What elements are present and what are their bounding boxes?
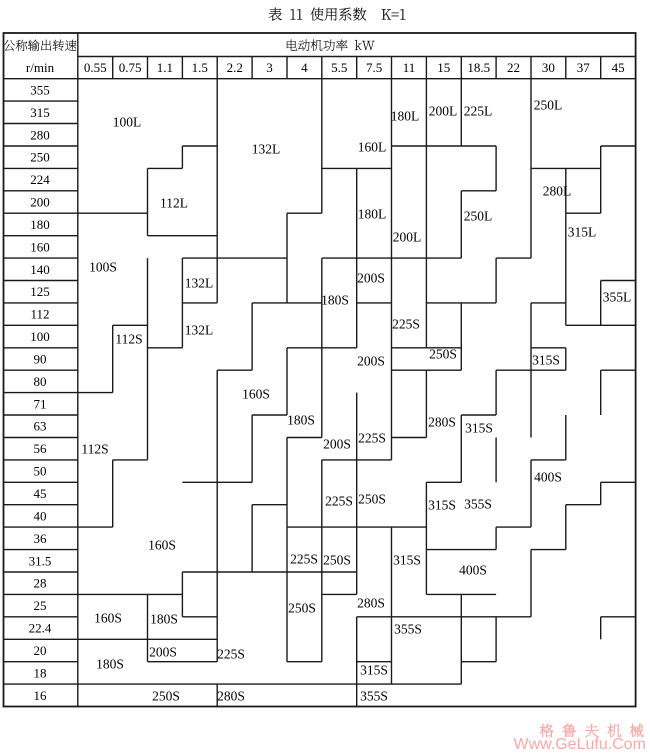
svg-text:7.5: 7.5 bbox=[366, 60, 382, 75]
svg-text:5.5: 5.5 bbox=[331, 60, 347, 75]
svg-text:250S: 250S bbox=[323, 553, 351, 568]
svg-text:4: 4 bbox=[301, 60, 308, 75]
svg-text:50: 50 bbox=[34, 464, 47, 479]
svg-text:280: 280 bbox=[30, 127, 50, 142]
svg-text:18.5: 18.5 bbox=[467, 60, 490, 75]
svg-text:200S: 200S bbox=[149, 645, 177, 660]
svg-text:250S: 250S bbox=[429, 347, 457, 362]
svg-text:315S: 315S bbox=[393, 553, 421, 568]
svg-text:132L: 132L bbox=[185, 323, 214, 338]
svg-text:Www.GeLufu.Com: Www.GeLufu.Com bbox=[514, 736, 646, 753]
svg-text:71: 71 bbox=[34, 396, 47, 411]
svg-text:112L: 112L bbox=[160, 196, 188, 211]
svg-text:225S: 225S bbox=[325, 494, 353, 509]
svg-text:250: 250 bbox=[30, 150, 50, 165]
svg-text:250L: 250L bbox=[534, 98, 563, 113]
svg-text:280S: 280S bbox=[357, 596, 385, 611]
svg-text:160: 160 bbox=[30, 239, 50, 254]
svg-text:r/min: r/min bbox=[26, 60, 55, 75]
svg-text:45: 45 bbox=[612, 60, 625, 75]
svg-text:400S: 400S bbox=[534, 470, 562, 485]
svg-text:355S: 355S bbox=[394, 622, 422, 637]
svg-text:3: 3 bbox=[266, 60, 273, 75]
svg-text:250S: 250S bbox=[358, 492, 386, 507]
svg-text:22: 22 bbox=[507, 60, 520, 75]
svg-text:63: 63 bbox=[34, 419, 47, 434]
svg-text:1.1: 1.1 bbox=[157, 60, 173, 75]
svg-text:180L: 180L bbox=[391, 109, 420, 124]
svg-text:355S: 355S bbox=[360, 689, 388, 704]
svg-text:280L: 280L bbox=[543, 184, 572, 199]
svg-text:36: 36 bbox=[34, 531, 48, 546]
svg-text:100S: 100S bbox=[89, 260, 117, 275]
svg-text:37: 37 bbox=[577, 60, 591, 75]
svg-text:80: 80 bbox=[34, 374, 47, 389]
svg-text:315: 315 bbox=[30, 105, 50, 120]
svg-text:125: 125 bbox=[30, 284, 50, 299]
svg-text:225S: 225S bbox=[392, 317, 420, 332]
svg-text:160L: 160L bbox=[358, 140, 387, 155]
svg-text:225S: 225S bbox=[358, 431, 386, 446]
svg-text:0.55: 0.55 bbox=[84, 60, 107, 75]
svg-text:315L: 315L bbox=[568, 225, 597, 240]
svg-text:132L: 132L bbox=[185, 276, 214, 291]
svg-text:180: 180 bbox=[30, 217, 50, 232]
svg-text:90: 90 bbox=[34, 352, 47, 367]
svg-text:250L: 250L bbox=[464, 209, 493, 224]
svg-text:20: 20 bbox=[34, 643, 47, 658]
svg-text:11: 11 bbox=[403, 60, 416, 75]
svg-text:315S: 315S bbox=[360, 663, 388, 678]
svg-text:180L: 180L bbox=[358, 207, 387, 222]
svg-text:45: 45 bbox=[34, 486, 47, 501]
svg-text:112: 112 bbox=[30, 307, 49, 322]
svg-text:31.5: 31.5 bbox=[29, 553, 52, 568]
svg-text:15: 15 bbox=[437, 60, 450, 75]
svg-text:250S: 250S bbox=[152, 689, 180, 704]
svg-text:22.4: 22.4 bbox=[29, 621, 52, 636]
svg-text:180S: 180S bbox=[150, 612, 178, 627]
svg-text:2.2: 2.2 bbox=[227, 60, 243, 75]
svg-text:132L: 132L bbox=[252, 142, 281, 157]
svg-text:180S: 180S bbox=[287, 413, 315, 428]
svg-text:100: 100 bbox=[30, 329, 50, 344]
svg-text:200: 200 bbox=[30, 195, 50, 210]
svg-text:56: 56 bbox=[34, 441, 48, 456]
svg-text:180S: 180S bbox=[321, 293, 349, 308]
svg-text:100L: 100L bbox=[113, 115, 142, 130]
svg-text:112S: 112S bbox=[115, 332, 142, 347]
svg-text:225S: 225S bbox=[290, 552, 318, 567]
svg-text:200L: 200L bbox=[393, 230, 422, 245]
svg-text:28: 28 bbox=[34, 576, 47, 591]
svg-text:200L: 200L bbox=[429, 104, 458, 119]
svg-text:16: 16 bbox=[34, 688, 48, 703]
svg-text:355L: 355L bbox=[603, 290, 632, 305]
svg-text:280S: 280S bbox=[428, 415, 456, 430]
svg-text:160S: 160S bbox=[148, 538, 176, 553]
svg-text:160S: 160S bbox=[242, 387, 270, 402]
svg-text:200S: 200S bbox=[357, 354, 385, 369]
svg-text:140: 140 bbox=[30, 262, 50, 277]
svg-text:160S: 160S bbox=[94, 611, 122, 626]
svg-text:224: 224 bbox=[30, 172, 50, 187]
svg-text:280S: 280S bbox=[217, 689, 245, 704]
svg-text:225L: 225L bbox=[464, 104, 493, 119]
svg-text:112S: 112S bbox=[81, 442, 108, 457]
svg-text:315S: 315S bbox=[428, 498, 456, 513]
svg-text:225S: 225S bbox=[217, 647, 245, 662]
svg-text:400S: 400S bbox=[459, 563, 487, 578]
svg-text:180S: 180S bbox=[96, 657, 124, 672]
svg-text:315S: 315S bbox=[465, 421, 493, 436]
svg-text:0.75: 0.75 bbox=[119, 60, 142, 75]
svg-text:1.5: 1.5 bbox=[192, 60, 208, 75]
svg-text:30: 30 bbox=[542, 60, 555, 75]
svg-text:250S: 250S bbox=[288, 601, 316, 616]
svg-text:18: 18 bbox=[34, 665, 47, 680]
svg-text:315S: 315S bbox=[532, 353, 560, 368]
svg-text:355S: 355S bbox=[464, 497, 492, 512]
svg-text:25: 25 bbox=[34, 598, 47, 613]
svg-text:200S: 200S bbox=[357, 271, 385, 286]
svg-text:200S: 200S bbox=[323, 437, 351, 452]
svg-text:40: 40 bbox=[34, 508, 47, 523]
svg-text:355: 355 bbox=[30, 82, 50, 97]
